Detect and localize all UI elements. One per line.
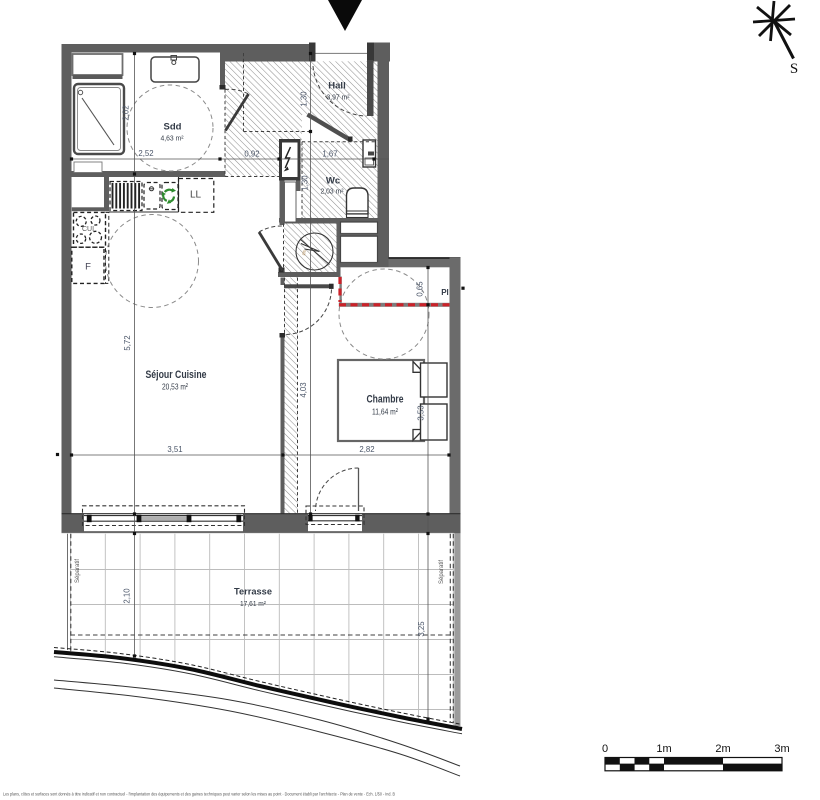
svg-text:1,67: 1,67 bbox=[322, 150, 337, 159]
svg-text:2,02: 2,02 bbox=[122, 105, 131, 120]
svg-text:3,53: 3,53 bbox=[417, 405, 426, 420]
svg-text:2m: 2m bbox=[715, 743, 730, 755]
svg-text:5,72: 5,72 bbox=[123, 335, 132, 350]
svg-text:3,25: 3,25 bbox=[417, 621, 426, 637]
svg-text:1m: 1m bbox=[656, 743, 671, 755]
svg-text:0: 0 bbox=[602, 743, 608, 755]
svg-text:LL: LL bbox=[190, 190, 202, 201]
svg-text:S: S bbox=[790, 61, 798, 77]
svg-text:17,61 m²: 17,61 m² bbox=[240, 599, 266, 608]
svg-text:11,64 m²: 11,64 m² bbox=[372, 407, 398, 417]
svg-text:Les plans, côtes et surfaces s: Les plans, côtes et surfaces sont donnés… bbox=[3, 792, 395, 797]
svg-text:0,92: 0,92 bbox=[244, 150, 259, 159]
svg-text:CUI: CUI bbox=[82, 226, 94, 233]
svg-text:Terrasse: Terrasse bbox=[234, 587, 272, 598]
svg-text:3,97 m²: 3,97 m² bbox=[327, 93, 350, 102]
svg-text:4,63 m²: 4,63 m² bbox=[161, 134, 184, 143]
svg-text:F: F bbox=[85, 262, 91, 273]
svg-text:3m: 3m bbox=[774, 743, 789, 755]
svg-text:20,53 m²: 20,53 m² bbox=[162, 382, 188, 392]
svg-text:Pl: Pl bbox=[441, 288, 449, 297]
svg-text:Hall: Hall bbox=[328, 81, 345, 92]
svg-text:Séparatif: Séparatif bbox=[75, 559, 81, 583]
svg-text:4,03: 4,03 bbox=[299, 382, 308, 397]
svg-text:2,10: 2,10 bbox=[123, 588, 132, 604]
svg-text:Sdd: Sdd bbox=[164, 122, 182, 133]
svg-text:Wc: Wc bbox=[326, 176, 340, 187]
svg-text:2,52: 2,52 bbox=[138, 149, 153, 158]
svg-text:2,82: 2,82 bbox=[359, 445, 374, 454]
svg-text:Séparatif: Séparatif bbox=[439, 560, 445, 584]
svg-text:1,30: 1,30 bbox=[300, 91, 309, 107]
svg-text:0,65: 0,65 bbox=[416, 281, 425, 297]
svg-text:Chambre: Chambre bbox=[367, 394, 404, 406]
svg-text:3,51: 3,51 bbox=[167, 445, 182, 454]
svg-text:1,30: 1,30 bbox=[301, 175, 310, 191]
svg-text:Séjour Cuisine: Séjour Cuisine bbox=[146, 369, 207, 381]
svg-text:2,03 m²: 2,03 m² bbox=[321, 187, 344, 196]
